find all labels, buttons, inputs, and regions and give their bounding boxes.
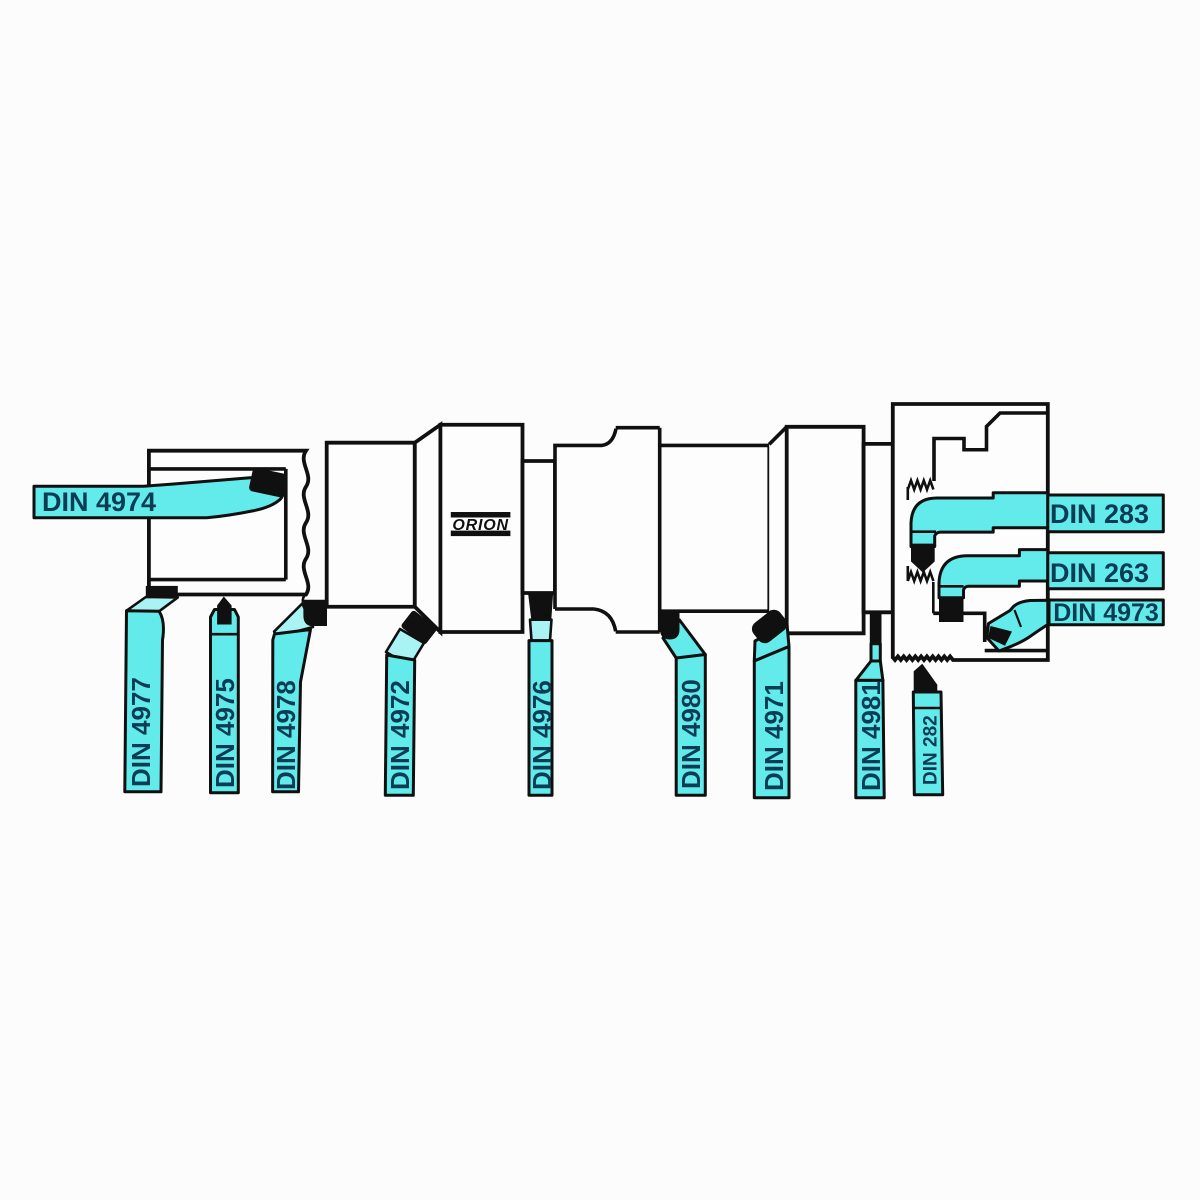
svg-text:DIN 4975: DIN 4975 [210, 678, 240, 788]
svg-text:DIN 4974: DIN 4974 [42, 487, 156, 517]
svg-text:DIN 4980: DIN 4980 [676, 679, 706, 789]
svg-text:DIN 283: DIN 283 [1050, 499, 1149, 529]
svg-text:DIN 4977: DIN 4977 [126, 677, 156, 787]
svg-text:DIN 282: DIN 282 [921, 715, 942, 785]
svg-text:DIN 4981: DIN 4981 [856, 681, 886, 791]
svg-text:DIN 4978: DIN 4978 [271, 680, 301, 790]
svg-text:DIN 4972: DIN 4972 [385, 680, 415, 790]
svg-text:DIN 4976: DIN 4976 [527, 680, 557, 790]
svg-text:DIN 263: DIN 263 [1050, 558, 1149, 588]
svg-text:DIN 4971: DIN 4971 [759, 681, 789, 791]
svg-text:DIN 4973: DIN 4973 [1053, 599, 1159, 627]
